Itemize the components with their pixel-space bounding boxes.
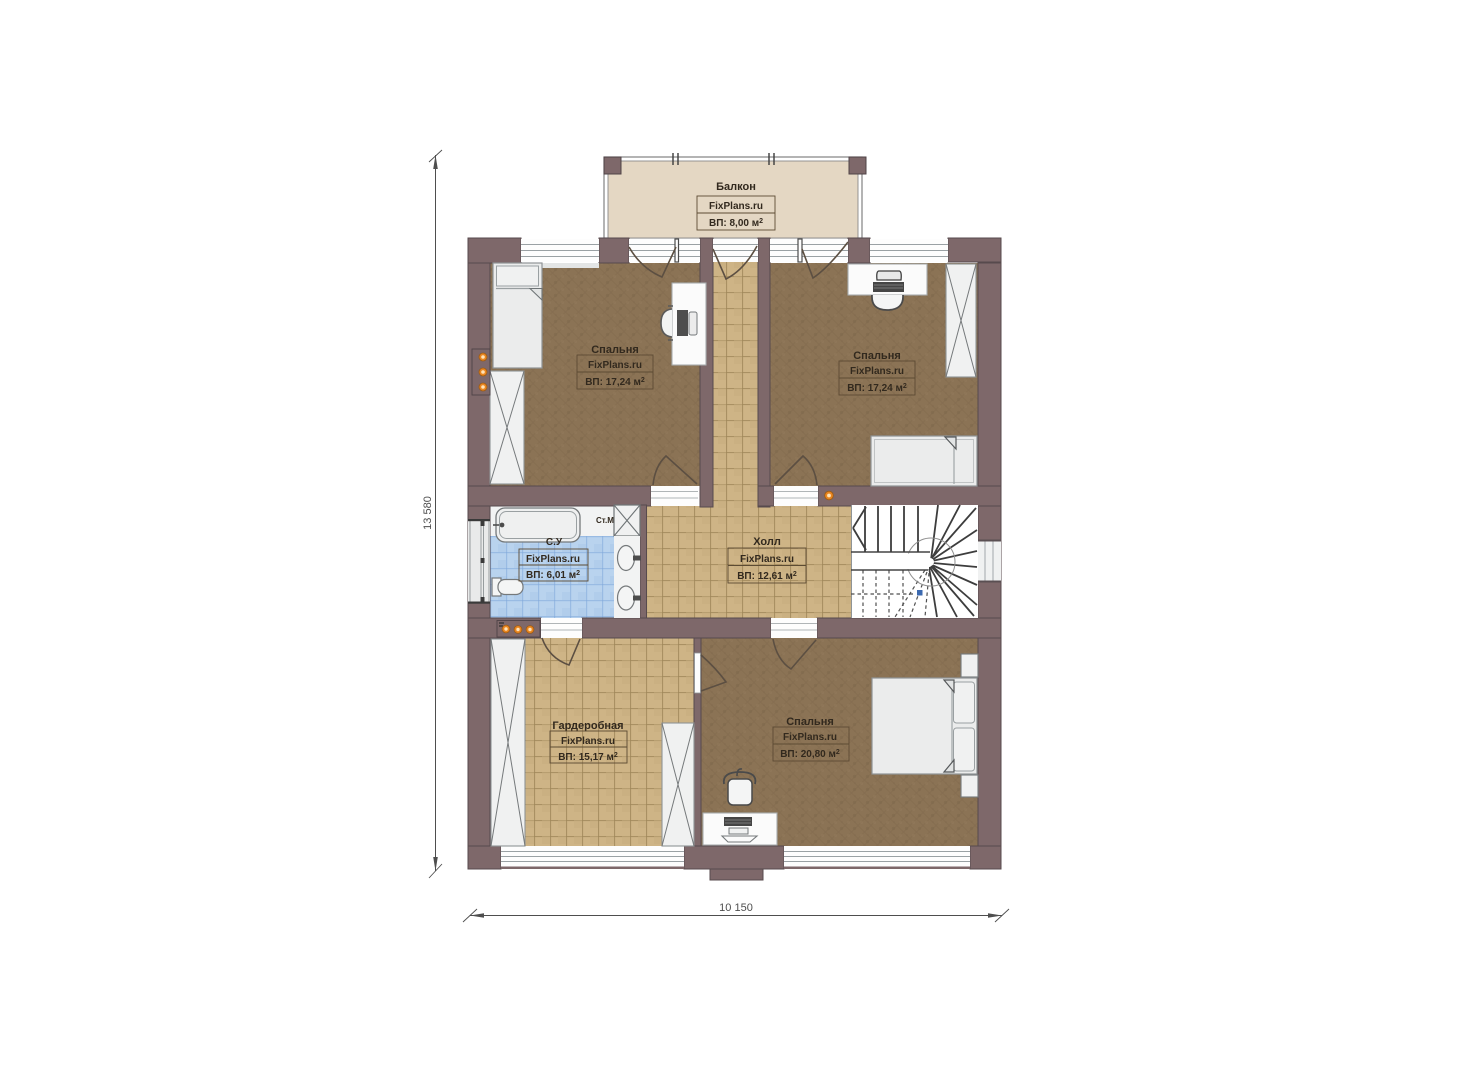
svg-text:Ст.М: Ст.М	[596, 516, 614, 525]
svg-text:ВП: 6,01 м2: ВП: 6,01 м2	[526, 570, 580, 581]
svg-text:ВП: 20,80 м2: ВП: 20,80 м2	[780, 749, 840, 760]
svg-text:ВП: 17,24 м2: ВП: 17,24 м2	[847, 383, 907, 394]
svg-text:Холл: Холл	[753, 536, 781, 548]
svg-text:ВП: 15,17 м2: ВП: 15,17 м2	[558, 752, 618, 763]
svg-text:13 580: 13 580	[422, 496, 434, 530]
svg-text:Спальня: Спальня	[591, 344, 639, 356]
svg-text:FixPlans.ru: FixPlans.ru	[783, 732, 837, 743]
svg-text:Гардеробная: Гардеробная	[552, 720, 623, 732]
svg-text:ВП: 8,00 м2: ВП: 8,00 м2	[709, 218, 763, 229]
svg-text:FixPlans.ru: FixPlans.ru	[709, 201, 763, 212]
svg-text:ВП: 17,24 м2: ВП: 17,24 м2	[585, 377, 645, 388]
svg-text:10 150: 10 150	[719, 902, 753, 914]
svg-text:FixPlans.ru: FixPlans.ru	[526, 554, 580, 565]
svg-text:ВП: 12,61 м2: ВП: 12,61 м2	[737, 571, 797, 582]
svg-text:Спальня: Спальня	[853, 350, 901, 362]
svg-text:Спальня: Спальня	[786, 716, 834, 728]
svg-text:FixPlans.ru: FixPlans.ru	[850, 366, 904, 377]
svg-text:Балкон: Балкон	[716, 181, 756, 193]
svg-text:С.У: С.У	[546, 537, 563, 548]
svg-text:FixPlans.ru: FixPlans.ru	[588, 360, 642, 371]
svg-text:FixPlans.ru: FixPlans.ru	[561, 736, 615, 747]
svg-text:FixPlans.ru: FixPlans.ru	[740, 554, 794, 565]
